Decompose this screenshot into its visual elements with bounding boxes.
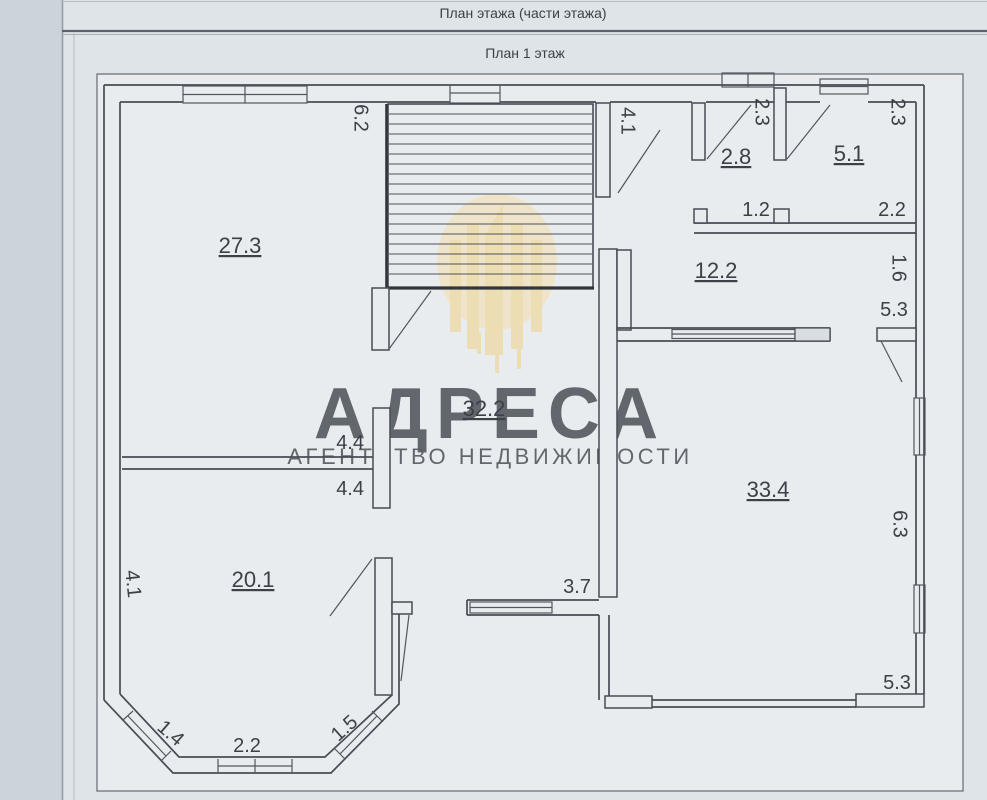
dim-2-3-a: 2.3 <box>751 98 773 126</box>
wall-20-1-right <box>375 558 392 695</box>
room-label-32-2: 32.2 <box>463 396 506 421</box>
room-label-33-4: 33.4 <box>747 477 790 502</box>
dim-6-2: 6.2 <box>350 104 372 132</box>
room-label-5-1: 5.1 <box>834 141 865 166</box>
dim-1-6: 1.6 <box>888 254 910 282</box>
wall-piece <box>877 328 916 341</box>
floor-plan-drawing: План этажа (части этажа) План 1 этаж АДР… <box>0 0 987 800</box>
duct-shaft <box>617 250 631 330</box>
plan-subtitle: План 1 этаж <box>485 45 565 61</box>
room-label-2-8: 2.8 <box>721 144 752 169</box>
scanned-floor-plan-page: План этажа (части этажа) План 1 этаж АДР… <box>0 0 987 800</box>
wall-notch-20-1 <box>392 602 412 614</box>
wall-room-2-8 <box>692 103 705 160</box>
wall-stub <box>856 694 924 707</box>
dim-4-1-left: 4.1 <box>120 569 145 599</box>
dim-6-3: 6.3 <box>889 510 911 538</box>
wall-notch <box>774 209 789 223</box>
dim-1-2: 1.2 <box>742 199 770 221</box>
dim-2-2-bay: 2.2 <box>233 735 261 757</box>
wall-central <box>599 249 617 597</box>
room-label-20-1: 20.1 <box>232 567 275 592</box>
wall-2-8-5-1 <box>774 88 786 160</box>
form-title: План этажа (части этажа) <box>439 5 606 21</box>
page-left-margin <box>0 0 62 800</box>
wall-stub-under-stairs <box>372 288 389 350</box>
dim-2-3-b: 2.3 <box>887 98 909 126</box>
room-label-12-2: 12.2 <box>695 258 738 283</box>
dim-3-7: 3.7 <box>563 576 591 598</box>
wall-stub-4-4 <box>373 408 390 508</box>
wall-corridor <box>596 103 610 197</box>
wall-stub <box>605 696 652 708</box>
wall-block <box>795 328 830 341</box>
dim-2-2-top: 2.2 <box>878 199 906 221</box>
dim-4-1-hall: 4.1 <box>617 107 639 135</box>
dim-5-3-bottom: 5.3 <box>883 672 911 694</box>
dim-4-4-a: 4.4 <box>336 432 364 454</box>
wall-notch <box>694 209 707 223</box>
dim-5-3-top: 5.3 <box>880 299 908 321</box>
dim-4-4-b: 4.4 <box>336 478 364 500</box>
room-label-27-3: 27.3 <box>219 233 262 258</box>
